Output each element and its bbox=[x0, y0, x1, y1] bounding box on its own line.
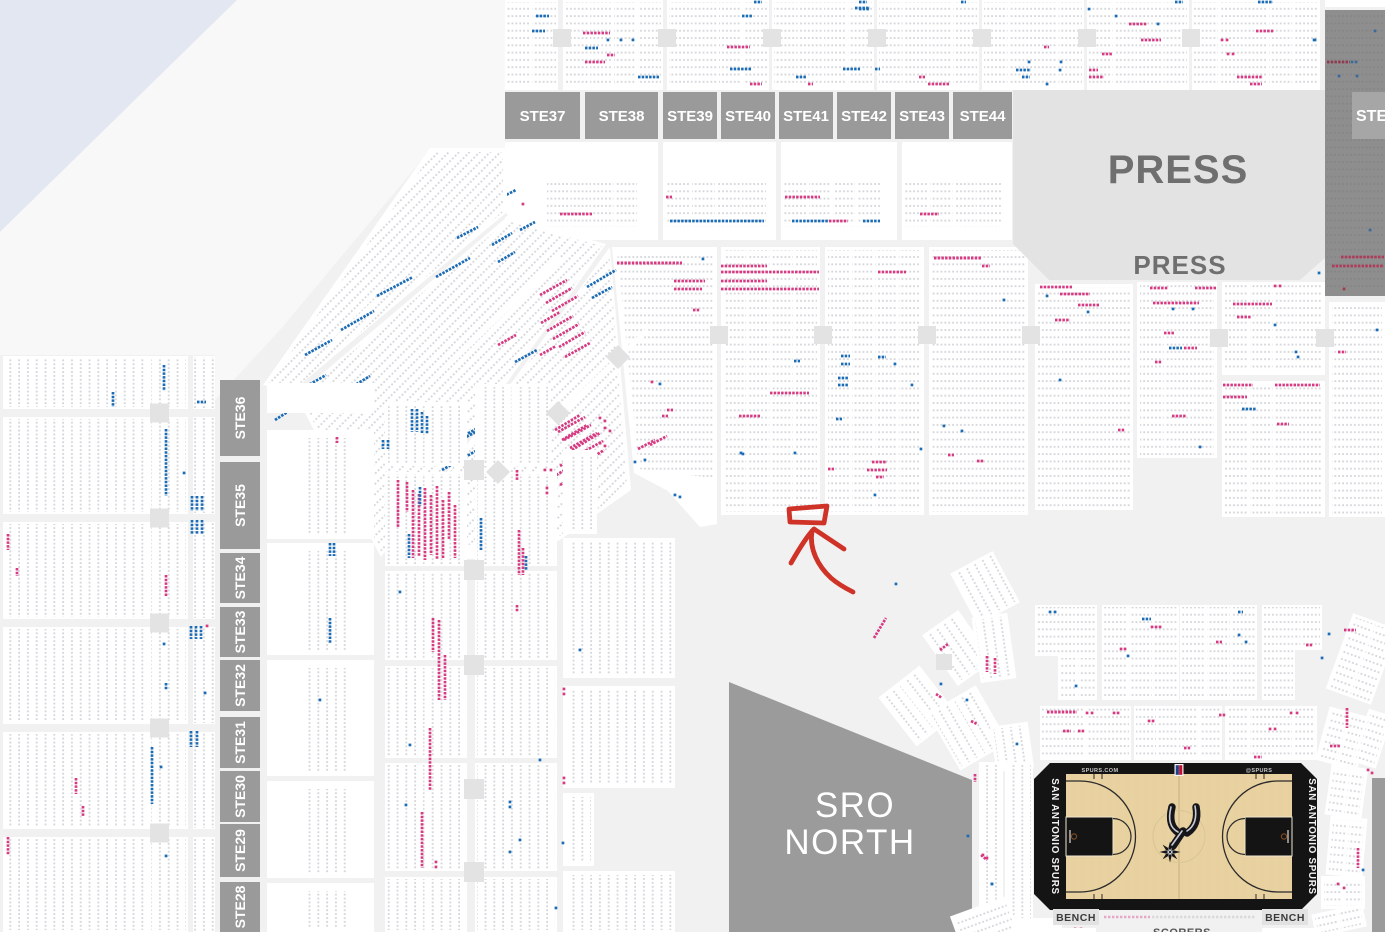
svg-text:STE37: STE37 bbox=[520, 108, 566, 125]
svg-text:PRESS: PRESS bbox=[1133, 250, 1226, 280]
svg-text:STE42: STE42 bbox=[841, 108, 887, 125]
svg-text:STE40: STE40 bbox=[725, 108, 771, 125]
svg-text:STE29: STE29 bbox=[232, 829, 248, 872]
svg-text:STE41: STE41 bbox=[783, 108, 829, 125]
svg-text:BENCH: BENCH bbox=[1056, 912, 1096, 924]
svg-text:SPURS.COM: SPURS.COM bbox=[1082, 768, 1119, 774]
svg-text:BENCH: BENCH bbox=[1265, 912, 1305, 924]
svg-text:STE: STE bbox=[1356, 108, 1385, 125]
svg-text:SAN ANTONIO SPURS: SAN ANTONIO SPURS bbox=[1049, 778, 1060, 894]
svg-text:STE44: STE44 bbox=[960, 108, 1007, 125]
svg-text:STE34: STE34 bbox=[232, 556, 248, 599]
svg-text:STE39: STE39 bbox=[667, 108, 713, 125]
svg-text:STE30: STE30 bbox=[232, 775, 248, 818]
svg-text:@SPURS: @SPURS bbox=[1246, 768, 1273, 774]
svg-text:SAN ANTONIO SPURS: SAN ANTONIO SPURS bbox=[1306, 778, 1317, 894]
svg-text:STE31: STE31 bbox=[232, 721, 248, 764]
svg-text:STE32: STE32 bbox=[232, 664, 248, 707]
svg-text:STE38: STE38 bbox=[599, 108, 645, 125]
svg-text:STE43: STE43 bbox=[899, 108, 945, 125]
svg-text:STE35: STE35 bbox=[232, 484, 248, 527]
svg-text:SRO: SRO bbox=[815, 786, 895, 825]
svg-text:PRESS: PRESS bbox=[1108, 148, 1249, 192]
svg-text:STE33: STE33 bbox=[232, 610, 248, 653]
svg-text:SCORERS: SCORERS bbox=[1153, 927, 1211, 932]
svg-text:STE36: STE36 bbox=[232, 396, 248, 439]
svg-text:NORTH: NORTH bbox=[784, 823, 915, 862]
svg-text:STE28: STE28 bbox=[232, 885, 248, 928]
